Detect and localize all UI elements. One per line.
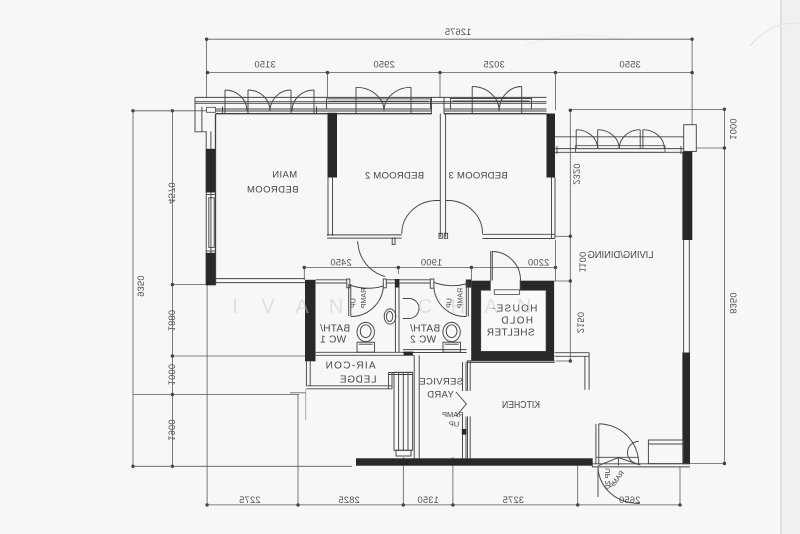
svg-text:MAIN: MAIN [272,169,297,180]
svg-text:LEDGE: LEDGE [339,375,376,386]
svg-text:RAMP: RAMP [361,288,368,309]
svg-text:1000: 1000 [728,118,738,139]
svg-text:2825: 2825 [338,495,359,505]
svg-text:I: I [232,296,238,318]
svg-text:A: A [484,296,498,318]
svg-text:N: N [517,296,531,318]
svg-text:C: C [418,296,432,318]
svg-text:1880: 1880 [167,310,177,331]
svg-text:YARD: YARD [427,389,454,400]
svg-text:WC 1: WC 1 [320,335,346,346]
svg-text:1000: 1000 [167,364,177,385]
svg-text:WC 2: WC 2 [410,335,436,346]
svg-text:LIVING/DINING: LIVING/DINING [587,250,653,261]
svg-text:KITCHEN: KITCHEN [502,400,540,411]
svg-text:1100: 1100 [578,252,588,273]
svg-text:2950: 2950 [373,60,394,70]
svg-text:H: H [451,296,465,318]
svg-text:4570: 4570 [167,182,177,203]
svg-text:2450: 2450 [330,258,351,268]
svg-text:9350: 9350 [136,275,146,296]
svg-text:V: V [261,296,275,318]
svg-text:2200: 2200 [528,258,549,268]
svg-text:1900: 1900 [167,419,177,440]
svg-text:AIR-CON: AIR-CON [324,360,375,371]
svg-text:BEDROOM: BEDROOM [247,184,299,195]
svg-text:2150: 2150 [576,312,586,333]
svg-text:3275: 3275 [503,495,524,505]
svg-text:N: N [329,296,343,318]
svg-text:BATH/: BATH/ [320,324,350,335]
svg-text:2275: 2275 [239,495,260,505]
svg-text:3150: 3150 [254,60,275,70]
svg-text:RAMP: RAMP [442,410,464,419]
svg-text:SERVICE: SERVICE [419,376,463,387]
svg-text:A: A [295,296,309,318]
svg-text:1900: 1900 [421,258,442,268]
svg-text:SHELTER: SHELTER [486,328,534,339]
svg-text:3550: 3550 [619,60,640,70]
svg-text:1350: 1350 [417,495,438,505]
svg-text:2320: 2320 [572,163,582,184]
svg-text:UP: UP [351,298,358,308]
svg-text:BEDROOM 3: BEDROOM 3 [448,170,507,181]
svg-text:8350: 8350 [728,292,738,313]
svg-text:BEDROOM 2: BEDROOM 2 [365,170,424,181]
svg-text:BATH/: BATH/ [410,324,440,335]
svg-text:12675: 12675 [445,27,472,37]
svg-text:UP: UP [449,419,459,428]
svg-text:3025: 3025 [483,60,504,70]
